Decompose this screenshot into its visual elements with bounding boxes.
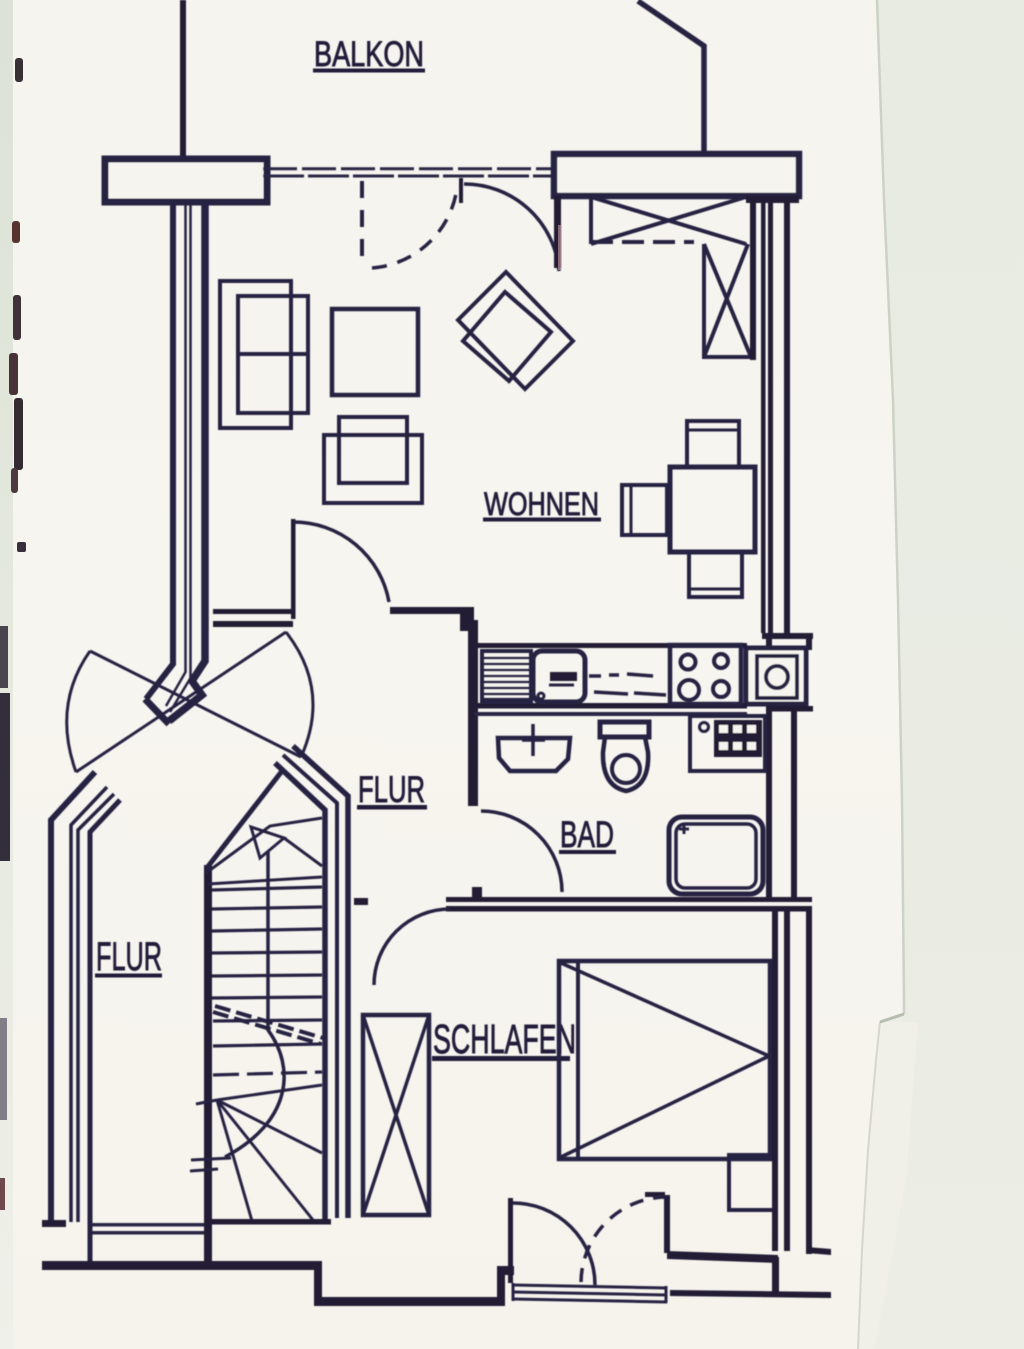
svg-text:FLUR: FLUR <box>96 935 162 979</box>
svg-text:WOHNEN: WOHNEN <box>484 486 599 522</box>
svg-text:BAD: BAD <box>560 814 614 855</box>
svg-text:FLUR: FLUR <box>358 769 425 810</box>
svg-text:SCHLAFEN: SCHLAFEN <box>433 1016 576 1062</box>
svg-text:BALKON: BALKON <box>314 35 424 74</box>
